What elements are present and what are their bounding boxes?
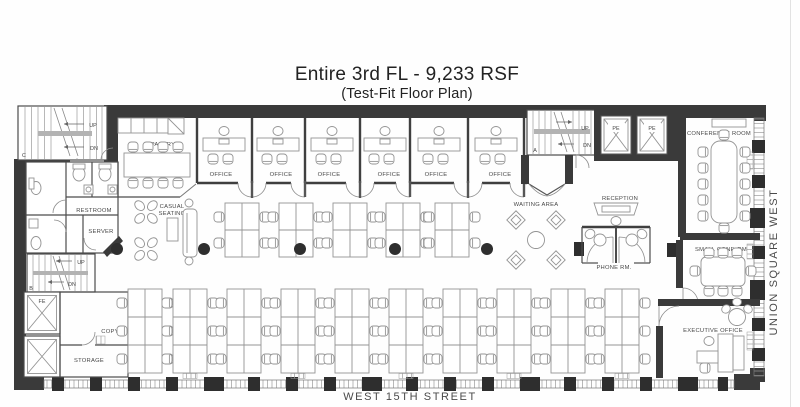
office-1: OFFICE [203, 127, 245, 179]
stair-c-up: UP [89, 123, 97, 129]
meeting-table [729, 309, 746, 326]
entry-vestibule [521, 155, 589, 196]
office-label: OFFICE [425, 172, 448, 178]
executive-office-label: EXECUTIVE OFFICE [683, 328, 743, 334]
waiting-area: WAITING AREA [507, 202, 565, 269]
fe-label: FE [39, 299, 46, 305]
stair-c-dn: DN [90, 146, 98, 152]
stair-b-label: B [29, 286, 33, 292]
casual-seating: CASUAL SEATING [133, 199, 197, 265]
office-3: OFFICE [311, 127, 353, 179]
phone-rm-label: PHONE RM. [596, 265, 631, 271]
stair-b-dn: DN [68, 282, 76, 288]
stair-a-dn: DN [583, 143, 591, 149]
stair-a: A UP DN [527, 110, 597, 155]
reception-desk [594, 203, 638, 215]
pe-label: PE [612, 126, 620, 132]
stair-b: B UP DN [27, 254, 95, 292]
phone-rooms: PHONE RM. [582, 227, 650, 271]
pe-elevators: PE PE [594, 105, 682, 161]
radiator [747, 332, 753, 350]
floor-plan-page: Entire 3rd FL - 9,233 RSF (Test-Fit Floo… [0, 0, 800, 407]
toilet [31, 237, 41, 250]
stair-a-label: A [533, 148, 537, 154]
sink [29, 219, 38, 228]
open-desk-area-south [117, 289, 650, 379]
stair-c-label: C [22, 153, 26, 159]
pantry: PANTRY [118, 118, 196, 197]
open-desk-area-north [214, 203, 480, 257]
sofa [183, 209, 197, 257]
office-6: OFFICE [475, 127, 517, 179]
street-label-east: UNION SQUARE WEST [768, 189, 780, 336]
office-4: OFFICE [364, 127, 406, 179]
small-conf-table [701, 257, 745, 286]
stair-c: C UP DN [18, 106, 113, 160]
pantry-table [124, 153, 190, 177]
pe-label: PE [648, 126, 656, 132]
copy-label: COPY [101, 329, 118, 335]
office-2: OFFICE [257, 127, 299, 179]
radiator [747, 244, 753, 259]
copier [96, 336, 105, 344]
office-label: OFFICE [318, 172, 341, 178]
waiting-area-label: WAITING AREA [514, 202, 559, 208]
sink [108, 185, 117, 194]
office-5: OFFICE [418, 127, 460, 179]
south-wall-windows [44, 377, 734, 391]
storage-label: STORAGE [74, 358, 104, 364]
office-row: OFFICE OFFICE OFFICE OFFICE OFFICE [197, 117, 527, 198]
stair-b-up: UP [77, 260, 85, 266]
casual-seating-label-1: CASUAL [160, 204, 185, 210]
conference-table [711, 141, 737, 223]
stair-a-up: UP [581, 126, 589, 132]
exec-desk [718, 334, 733, 372]
restroom-area: RESTROOM SERVER [26, 162, 123, 257]
sink [84, 185, 93, 194]
title-block: Entire 3rd FL - 9,233 RSF (Test-Fit Floo… [295, 64, 519, 102]
pantry-counter [118, 118, 168, 133]
office-label: OFFICE [489, 172, 512, 178]
casual-seating-label-2: SEATING [159, 211, 186, 217]
office-label: OFFICE [378, 172, 401, 178]
executive-office: EXECUTIVE OFFICE [656, 298, 754, 378]
credenza [712, 119, 746, 127]
east-wall-windows [747, 118, 765, 376]
office-label: OFFICE [270, 172, 293, 178]
plan-title: Entire 3rd FL - 9,233 RSF [295, 64, 519, 85]
reception: RECEPTION [594, 196, 638, 226]
restroom-label: RESTROOM [76, 208, 112, 214]
fe-elevators: FE [24, 292, 60, 377]
floor-plan-drawing: Entire 3rd FL - 9,233 RSF (Test-Fit Floo… [0, 0, 800, 407]
coffee-table [167, 218, 178, 241]
server-label: SERVER [88, 229, 113, 235]
street-label-south: WEST 15TH STREET [343, 391, 477, 403]
conference-room: CONFERENCE ROOM [678, 117, 760, 240]
reception-label: RECEPTION [602, 196, 638, 202]
plan-subtitle: (Test-Fit Floor Plan) [341, 86, 473, 102]
office-label: OFFICE [210, 172, 233, 178]
